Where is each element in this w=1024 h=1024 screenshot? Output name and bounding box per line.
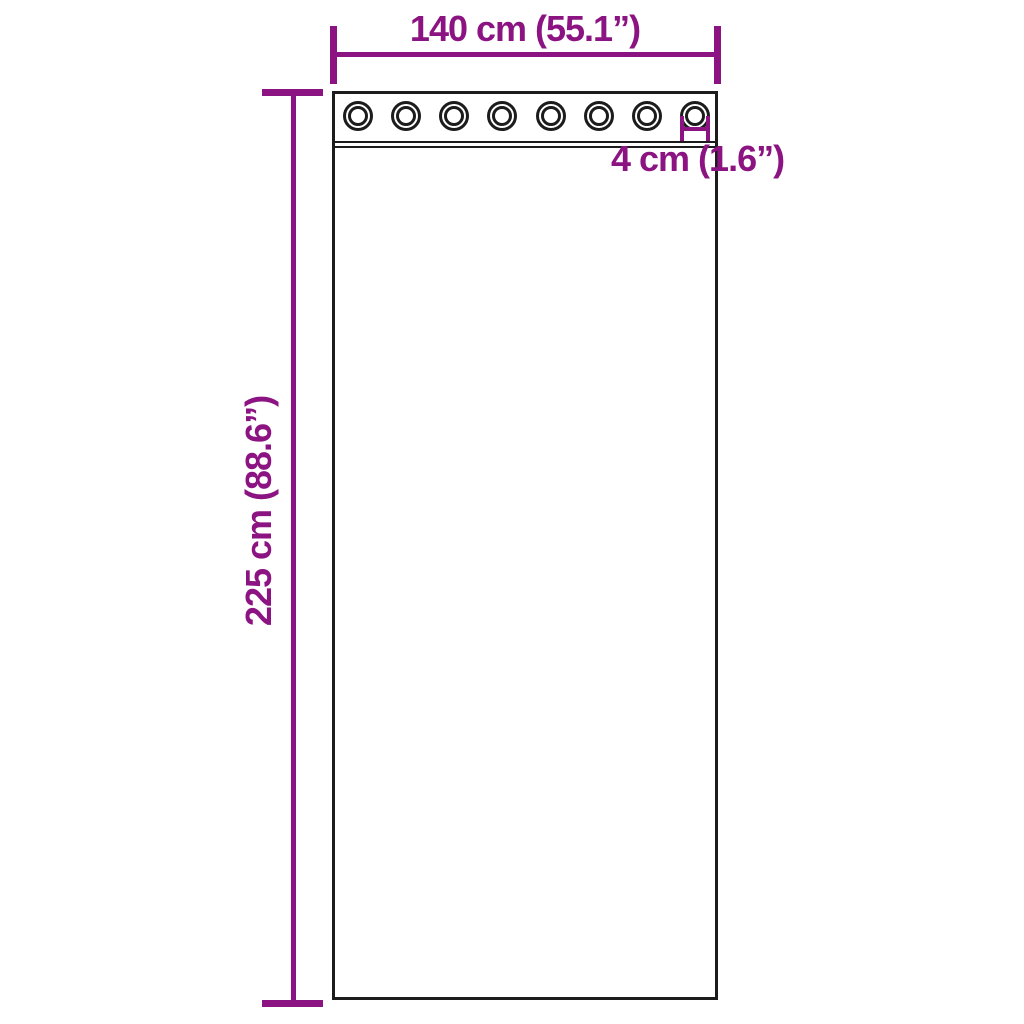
grommet-eyelet-hole [589, 106, 609, 126]
dimension-diagram-canvas: 140 cm (55.1”) 225 cm (88.6”) 4 cm (1.6”… [0, 0, 1024, 1024]
grommet-eyelet-hole [492, 106, 512, 126]
grommet-eyelet [536, 101, 566, 131]
width-dimension-line [331, 52, 721, 57]
grommet-eyelet-hole [637, 106, 657, 126]
grommet-eyelet [584, 101, 614, 131]
height-dimension-top-cap [262, 89, 323, 96]
grommet-eyelet [343, 101, 373, 131]
width-dimension-left-cap [330, 26, 337, 84]
curtain-panel-outline [332, 91, 718, 1000]
height-dimension-bottom-cap [262, 1000, 323, 1007]
grommet-eyelet [632, 101, 662, 131]
height-dimension-line [291, 92, 296, 1003]
grommet-eyelet [391, 101, 421, 131]
grommet-eyelet-hole [348, 106, 368, 126]
grommet-eyelet-hole [685, 106, 705, 126]
grommet-eyelet-hole [541, 106, 561, 126]
grommet-eyelet-hole [396, 106, 416, 126]
height-dimension-label: 225 cm (88.6”) [241, 396, 277, 626]
width-dimension-right-cap [714, 26, 721, 84]
grommet-dimension-label: 4 cm (1.6”) [611, 141, 784, 177]
grommet-dimension-bar [680, 127, 710, 131]
grommet-eyelet-hole [444, 106, 464, 126]
width-dimension-label: 140 cm (55.1”) [410, 11, 640, 47]
